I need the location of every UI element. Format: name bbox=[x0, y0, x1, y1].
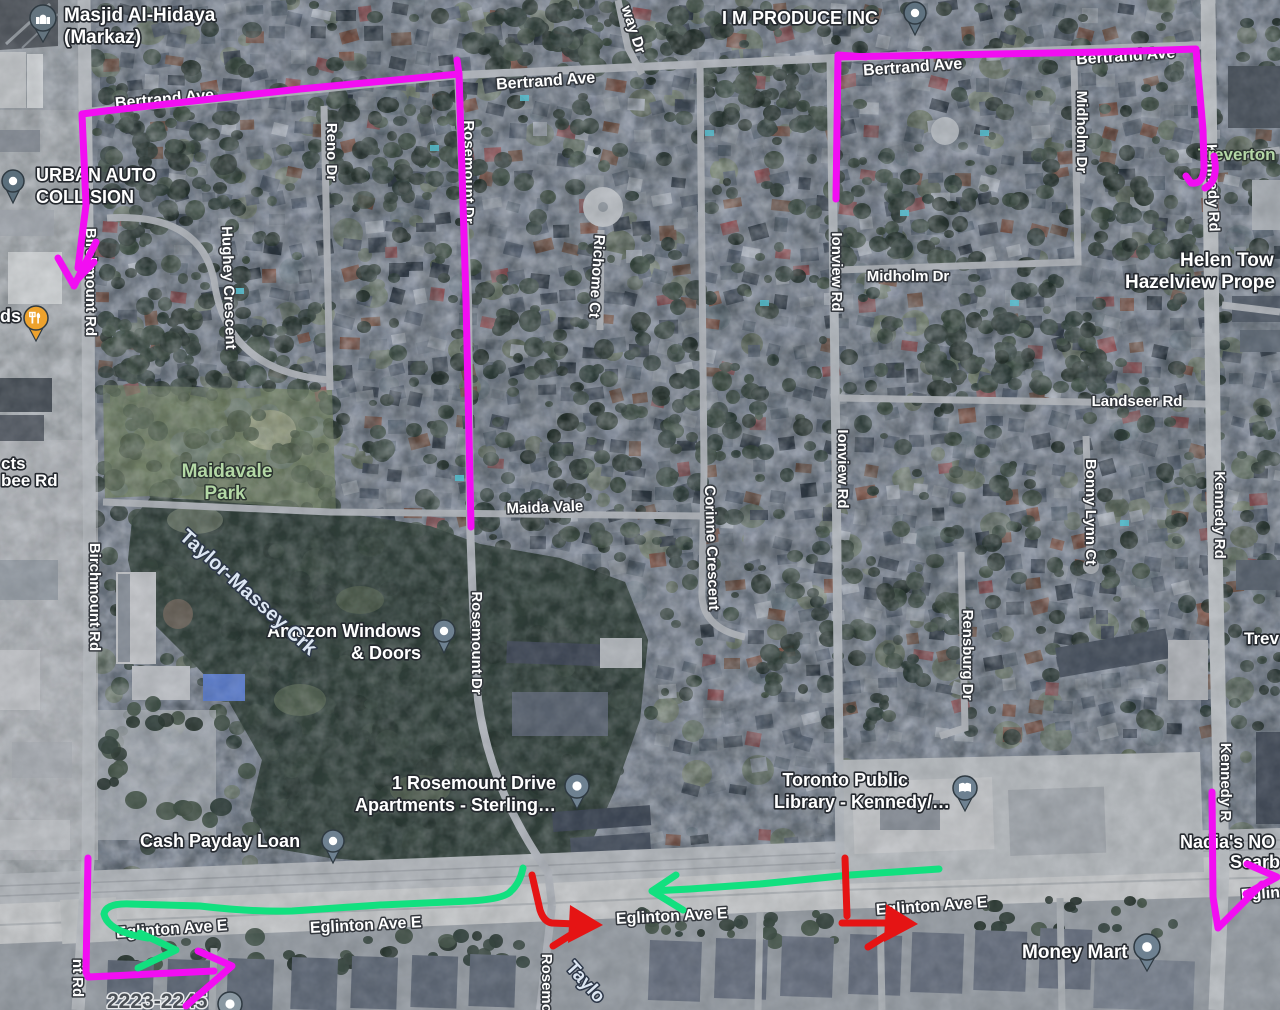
svg-text:Midholm Dr: Midholm Dr bbox=[867, 268, 950, 285]
svg-text:Maida Vale: Maida Vale bbox=[506, 498, 583, 518]
svg-text:Helen Tow: Helen Tow bbox=[1180, 250, 1274, 271]
svg-text:Treverton: Treverton bbox=[1198, 145, 1275, 164]
svg-text:Library - Kennedy/…: Library - Kennedy/… bbox=[774, 792, 950, 812]
svg-text:Apartments - Sterling…: Apartments - Sterling… bbox=[355, 795, 556, 815]
svg-text:& Doors: & Doors bbox=[351, 643, 421, 663]
svg-text:bee Rd: bee Rd bbox=[1, 471, 58, 490]
svg-text:Midholm Dr: Midholm Dr bbox=[1073, 91, 1090, 174]
svg-text:Nadia's NO: Nadia's NO bbox=[1180, 832, 1275, 852]
svg-text:Rensburg Dr: Rensburg Dr bbox=[959, 610, 976, 701]
svg-text:Birchmount Rd: Birchmount Rd bbox=[86, 543, 103, 651]
svg-text:(Markaz): (Markaz) bbox=[64, 27, 141, 48]
svg-text:Masjid Al-Hidaya: Masjid Al-Hidaya bbox=[64, 5, 216, 26]
svg-text:Landseer Rd: Landseer Rd bbox=[1092, 393, 1183, 410]
svg-text:URBAN AUTO: URBAN AUTO bbox=[36, 165, 156, 185]
svg-text:Money Mart: Money Mart bbox=[1022, 942, 1128, 963]
svg-text:1 Rosemount Drive: 1 Rosemount Drive bbox=[392, 773, 556, 793]
svg-text:Hazelview Prope: Hazelview Prope bbox=[1125, 272, 1275, 293]
svg-text:Maidavale: Maidavale bbox=[182, 461, 273, 482]
svg-text:Ionview Rd: Ionview Rd bbox=[828, 232, 845, 311]
svg-text:Ionview Rd: Ionview Rd bbox=[834, 429, 851, 508]
svg-text:Reno Dr: Reno Dr bbox=[323, 123, 340, 182]
svg-text:Bonny Lynn Ct: Bonny Lynn Ct bbox=[1082, 459, 1099, 565]
svg-text:Toronto Public: Toronto Public bbox=[782, 770, 908, 790]
svg-text:Rosemount: Rosemount bbox=[538, 954, 555, 1010]
svg-text:Trev: Trev bbox=[1244, 629, 1280, 648]
svg-text:Rosemount Dr: Rosemount Dr bbox=[468, 591, 485, 695]
svg-text:I M PRODUCE INC: I M PRODUCE INC bbox=[722, 8, 878, 28]
svg-text:Kennedy Rd: Kennedy Rd bbox=[1211, 471, 1228, 559]
svg-text:ds: ds bbox=[0, 306, 21, 326]
svg-text:Cash Payday Loan: Cash Payday Loan bbox=[140, 831, 300, 851]
svg-text:Park: Park bbox=[204, 483, 246, 504]
svg-text:Kennedy R: Kennedy R bbox=[1217, 743, 1234, 822]
